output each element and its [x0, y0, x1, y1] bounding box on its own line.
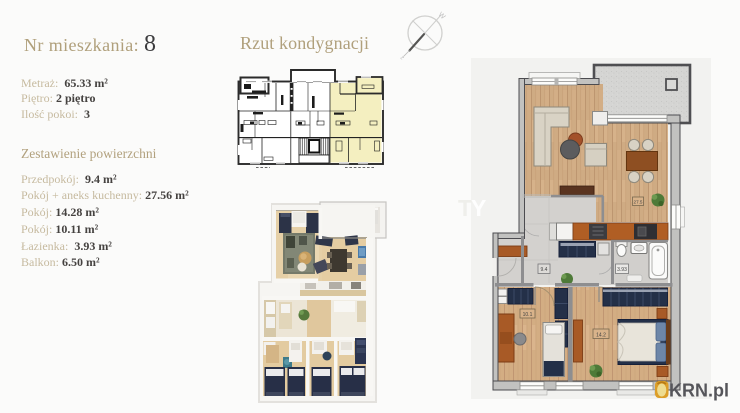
svg-text:W: W: [437, 11, 447, 21]
svg-text:10.1: 10.1: [523, 312, 533, 318]
svg-text:KRN.pl: KRN.pl: [669, 381, 729, 401]
svg-text:T: T: [458, 195, 472, 221]
svg-text:Y: Y: [471, 195, 486, 221]
svg-text:3.93: 3.93: [617, 267, 627, 273]
svg-text:14.2: 14.2: [596, 333, 606, 339]
svg-text:9.4: 9.4: [541, 267, 548, 273]
svg-text:z: z: [399, 55, 405, 61]
svg-text:27.5: 27.5: [634, 200, 643, 205]
